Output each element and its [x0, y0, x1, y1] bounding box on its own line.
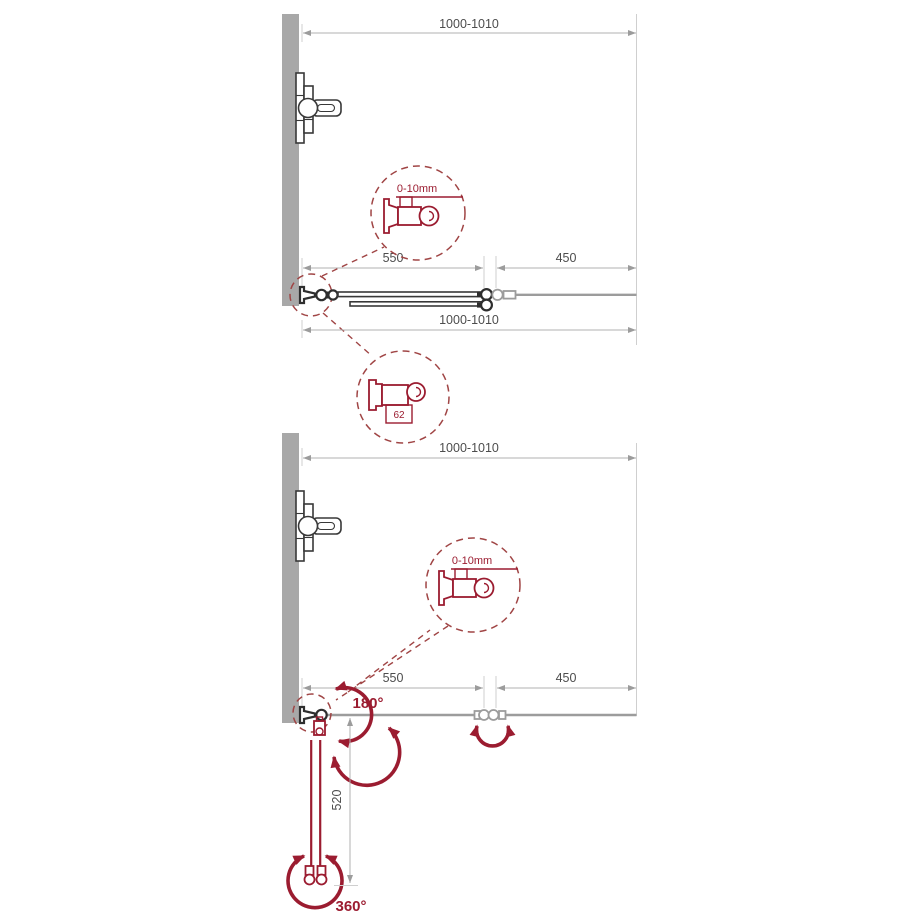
installation-diagram-page: 0-10mm 1000-1010 550 450	[0, 0, 920, 920]
dim-total: 1000-1010	[439, 441, 499, 455]
rotation-arc-180-outer	[334, 728, 400, 785]
detail-bubble-hinge-width: 62	[357, 351, 449, 443]
dim-panel-width: 550	[383, 671, 404, 685]
diagram-top-view-rotation: 1000-1010 550 450	[282, 433, 637, 915]
rotation-label-180: 180°	[352, 695, 383, 712]
middle-hinge-icon	[475, 710, 506, 720]
dim-fixed-width: 450	[556, 251, 577, 265]
wall	[282, 14, 299, 306]
folded-panel	[305, 717, 327, 885]
wall	[282, 433, 299, 723]
dim-total-top: 1000-1010	[439, 17, 499, 31]
leader-line-up	[322, 247, 384, 276]
wall-hinge-icon	[316, 710, 326, 720]
wall-profile-icon	[300, 707, 315, 723]
hinge-wall-plate-icon	[369, 380, 382, 410]
rotation-arc-middle-hinge	[477, 726, 509, 746]
rotation-label-360: 360°	[335, 898, 366, 915]
rotation-circle-360	[288, 856, 342, 908]
wall-profile-icon	[300, 287, 315, 303]
leader-line-down	[323, 313, 372, 356]
glass-panel-1	[338, 292, 482, 297]
end-hinge-icon	[305, 875, 315, 885]
glass-panel-2-folded	[350, 302, 482, 306]
hinge-width-label: 62	[393, 410, 405, 421]
diagram-top-view-folded: 1000-1010 550 450 1000	[282, 14, 637, 443]
hinge-barrel-icon	[382, 385, 408, 405]
dim-fixed-width: 450	[556, 671, 577, 685]
dim-total-bottom: 1000-1010	[439, 313, 499, 327]
wall-hinge-icon	[316, 290, 326, 300]
dim-fold-depth: 520	[330, 790, 344, 811]
screen-assembly-top-view	[300, 287, 637, 310]
installation-diagram: 0-10mm 1000-1010 550 450	[0, 0, 920, 920]
hinge-knuckle-icon	[407, 383, 425, 401]
middle-hinge-icon	[481, 289, 492, 300]
